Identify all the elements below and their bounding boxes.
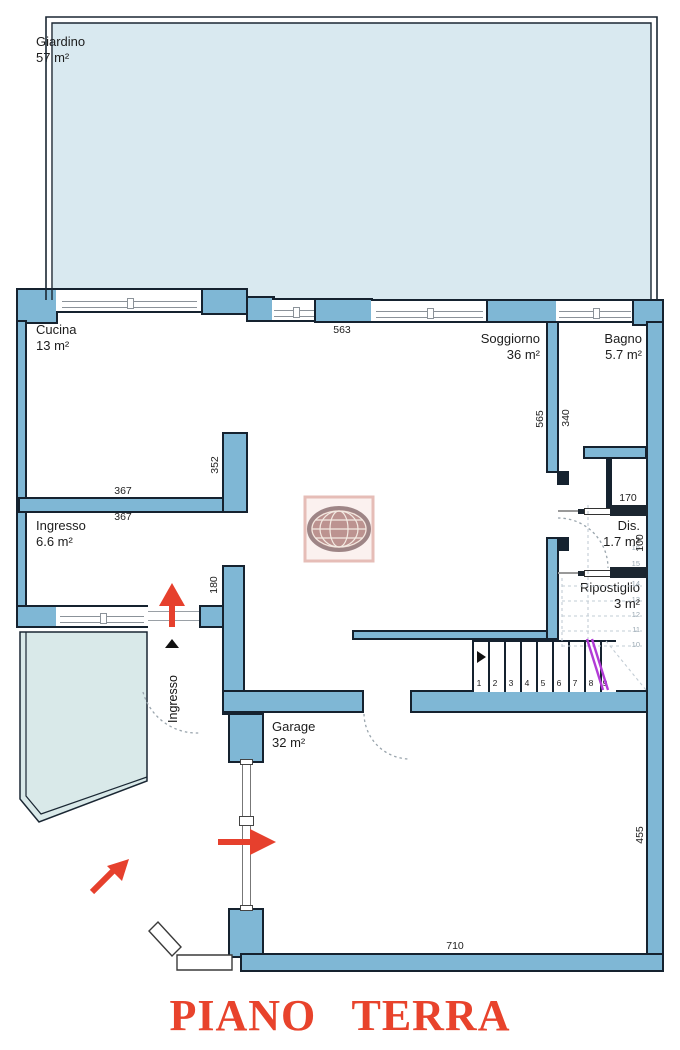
- access-path-arrow: [92, 859, 129, 892]
- stair-step-number: 9: [599, 678, 611, 688]
- wall: [201, 288, 248, 315]
- room-area: 13 m²: [36, 338, 76, 354]
- room-label-garage: Garage 32 m²: [272, 719, 315, 751]
- room-label-ripostiglio: Ripostiglio 3 m²: [556, 580, 640, 612]
- side-garden-patch: [20, 632, 147, 822]
- wall: [410, 690, 648, 713]
- entrance-door-threshold: [148, 611, 201, 621]
- door-stop: [578, 571, 584, 576]
- entrance-label: Ingresso: [166, 651, 180, 747]
- garden-area: [53, 23, 651, 299]
- door-cap: [240, 759, 253, 765]
- stair-step-number: 1: [473, 678, 485, 688]
- sliding-door: [610, 567, 648, 578]
- stair-step-number: 2: [489, 678, 501, 688]
- floor-plan: Giardino 57 m² 1 2 3: [0, 0, 680, 1050]
- room-label-dis: Dis. 1.7 m²: [576, 518, 640, 550]
- room-label-bagno: Bagno 5.7 m²: [578, 331, 642, 363]
- window: [56, 288, 203, 313]
- room-area: 57 m²: [36, 50, 85, 66]
- door-stop: [578, 509, 584, 514]
- room-name: Giardino: [36, 34, 85, 49]
- wall: [228, 908, 264, 958]
- upper-stair-number: 10: [620, 640, 640, 649]
- wall: [246, 296, 275, 322]
- door-swing-arc: [364, 714, 409, 759]
- side-garden-fence: [26, 632, 147, 814]
- room-label-cucina: Cucina 13 m²: [36, 322, 76, 354]
- window: [371, 299, 488, 323]
- door-jamb: [557, 537, 569, 551]
- wall: [199, 605, 224, 628]
- window: [56, 605, 148, 628]
- room-label-ingresso: Ingresso 6.6 m²: [36, 518, 86, 550]
- stair-step-number: 3: [505, 678, 517, 688]
- wall: [314, 298, 373, 323]
- entrance-direction-marker: [165, 639, 179, 648]
- wall: [583, 446, 647, 459]
- wall: [16, 320, 27, 610]
- dimension-455: 455: [634, 813, 646, 857]
- room-label-giardino: Giardino 57 m²: [36, 34, 85, 66]
- room-name: Cucina: [36, 322, 76, 337]
- room-area: 32 m²: [272, 735, 315, 751]
- window: [272, 298, 316, 322]
- wall: [486, 299, 558, 323]
- dimension-367-below: 367: [93, 511, 153, 523]
- door-cap: [240, 905, 253, 911]
- stair-step-number: 5: [537, 678, 549, 688]
- room-area: 3 m²: [556, 596, 640, 612]
- door-handle: [239, 816, 254, 826]
- dimension-565: 565: [534, 397, 546, 441]
- dimension-563: 563: [312, 324, 372, 336]
- room-name: Ripostiglio: [580, 580, 640, 595]
- wall: [646, 321, 664, 972]
- room-name: Ingresso: [36, 518, 86, 533]
- stair-step-number: 6: [553, 678, 565, 688]
- dimension-352: 352: [209, 443, 221, 487]
- plan-title: PIANO TERRA: [0, 990, 680, 1041]
- dimension-710: 710: [425, 940, 485, 952]
- dimension-100: 100: [634, 521, 646, 565]
- stair-step-number: 4: [521, 678, 533, 688]
- stair-step-number: 8: [585, 678, 597, 688]
- walkway-path-step: [149, 922, 181, 956]
- upper-stair-number: 11: [620, 625, 640, 634]
- room-name: Soggiorno: [481, 331, 540, 346]
- wall: [240, 953, 664, 972]
- stair-step-number: 7: [569, 678, 581, 688]
- wall: [222, 432, 248, 513]
- wall: [352, 630, 558, 640]
- walkway-path: [177, 955, 232, 970]
- room-area: 5.7 m²: [578, 347, 642, 363]
- garage-side-door: [242, 763, 251, 910]
- sliding-door: [610, 505, 648, 516]
- wall: [16, 288, 58, 324]
- room-name: Garage: [272, 719, 315, 734]
- door-jamb: [557, 471, 569, 485]
- room-area: 36 m²: [425, 347, 540, 363]
- wall: [546, 321, 559, 473]
- sliding-door-track: [584, 570, 612, 577]
- agency-watermark-logo: [305, 497, 373, 561]
- wall: [228, 713, 264, 763]
- dimension-340: 340: [560, 396, 572, 440]
- room-area: 6.6 m²: [36, 534, 86, 550]
- dimension-367-above: 367: [93, 485, 153, 497]
- wall: [16, 605, 58, 628]
- dimension-170: 170: [598, 492, 658, 504]
- room-area: 1.7 m²: [576, 534, 640, 550]
- wall: [222, 690, 364, 713]
- room-name: Bagno: [604, 331, 642, 346]
- stair-direction-arrow: [477, 651, 486, 663]
- sliding-door-track: [584, 508, 612, 515]
- room-label-soggiorno: Soggiorno 36 m²: [425, 331, 540, 363]
- dimension-180: 180: [208, 563, 220, 607]
- window: [556, 299, 634, 323]
